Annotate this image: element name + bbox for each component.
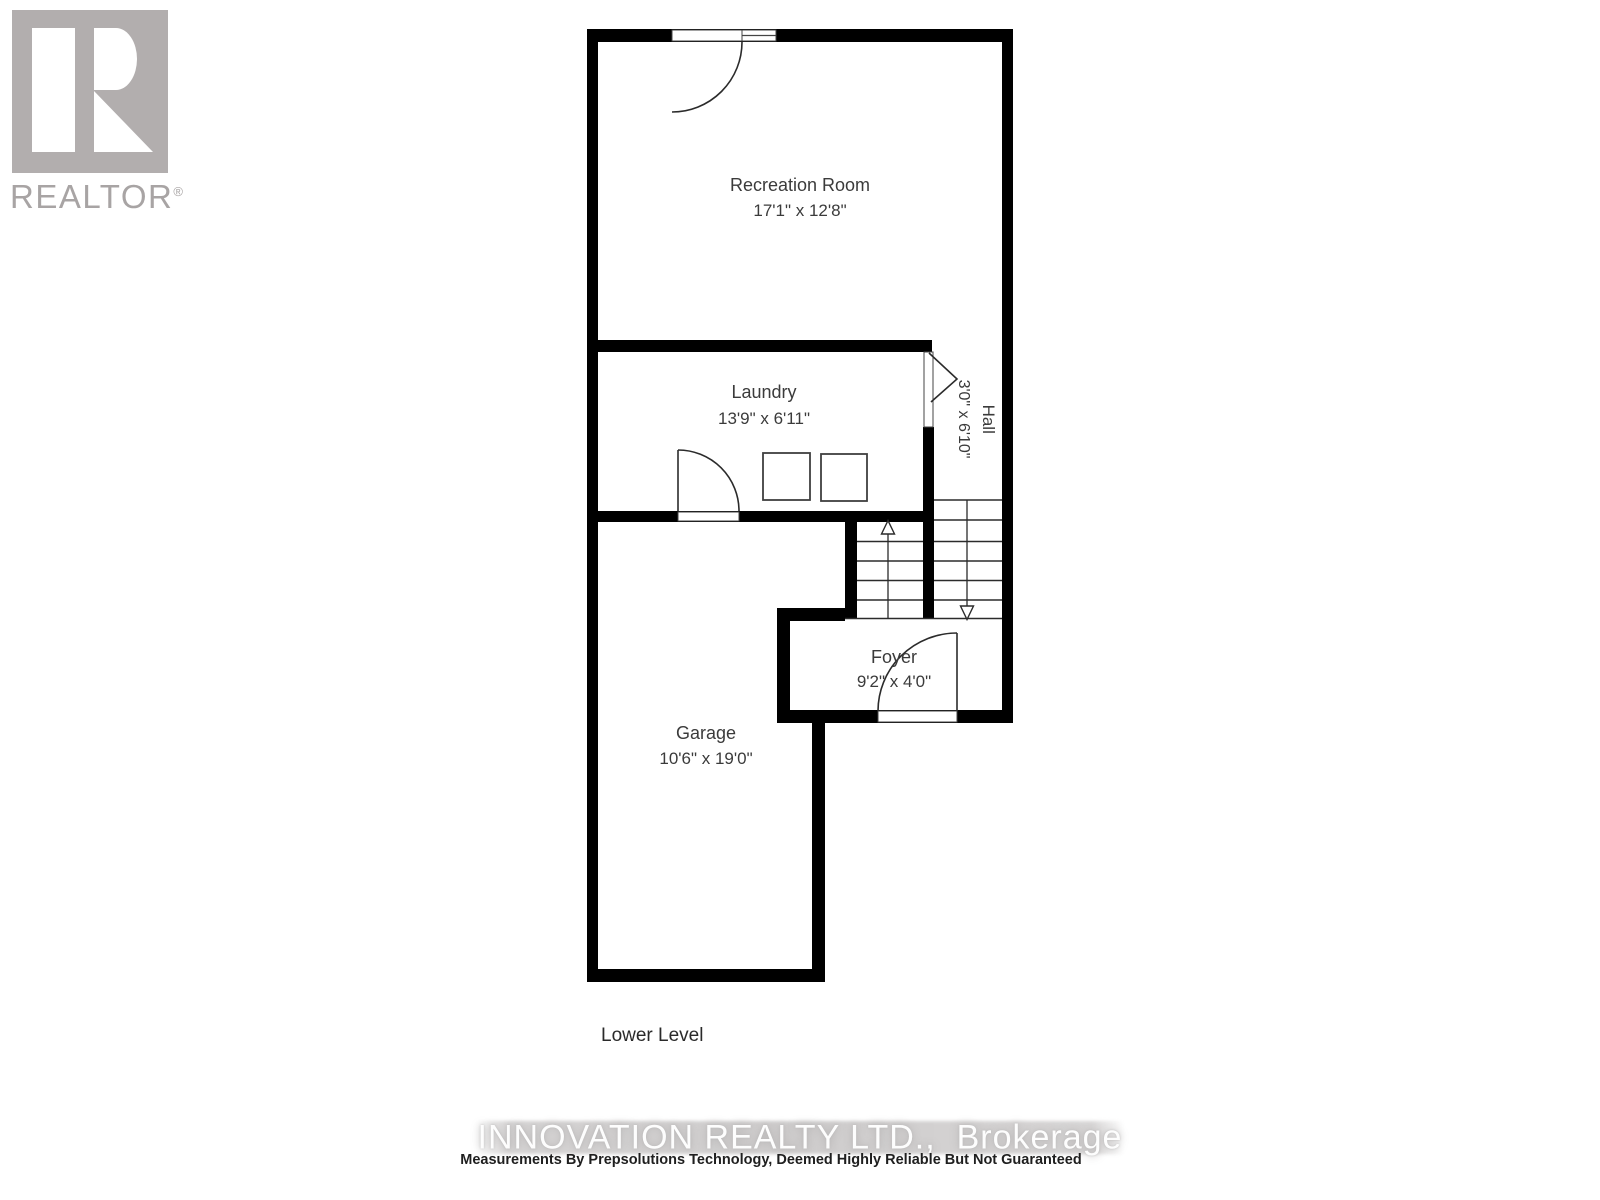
wall-foyer-left — [777, 608, 790, 723]
stair-treads-right — [934, 500, 1002, 600]
walls — [587, 29, 1013, 982]
room-label-hall: Hall — [972, 380, 998, 459]
room-dims-laundry: 13'9" x 6'11" — [718, 409, 810, 429]
laundry-door-swing — [678, 450, 739, 511]
room-dims-recreation: 17'1" x 12'8" — [753, 201, 846, 221]
washer-icon — [763, 453, 810, 500]
stairs-down-arrowhead-icon — [961, 606, 974, 620]
hall-door-opening — [924, 352, 933, 427]
rec-door-swing — [672, 42, 742, 112]
wall-top — [587, 29, 1013, 42]
wall-left — [587, 29, 598, 982]
level-label: Lower Level — [601, 1025, 703, 1047]
laundry-appliances — [763, 453, 867, 501]
measurement-disclaimer: Measurements By Prepsolutions Technology… — [460, 1152, 1081, 1168]
wall-garage-bottom — [587, 969, 825, 982]
wall-laundry-bottom — [598, 511, 923, 522]
room-label-garage: Garage — [676, 723, 736, 745]
room-label-recreation: Recreation Room — [730, 175, 870, 197]
wall-stair-middle — [923, 427, 934, 619]
rec-door-opening — [672, 30, 742, 41]
stair-treads-left — [857, 542, 923, 601]
page: { "logo": { "brand": "REALTOR", "registe… — [0, 0, 1600, 1200]
room-label-hall-block: Hall 3'0" x 6'10" — [954, 380, 998, 459]
laundry-door-threshold — [678, 512, 739, 521]
room-label-laundry: Laundry — [731, 382, 796, 404]
foyer-door-threshold — [878, 711, 957, 722]
wall-stair-left — [845, 511, 857, 619]
wall-right — [1002, 29, 1013, 723]
wall-garage-right — [812, 714, 825, 982]
room-dims-foyer: 9'2" x 4'0" — [857, 672, 931, 692]
dryer-icon — [821, 454, 867, 501]
room-dims-hall: 3'0" x 6'10" — [954, 380, 972, 459]
room-dims-garage: 10'6" x 19'0" — [659, 749, 752, 769]
room-label-foyer: Foyer — [871, 647, 917, 669]
stairs-up-arrowhead-icon — [882, 521, 895, 535]
wall-rec-laundry — [598, 340, 932, 352]
